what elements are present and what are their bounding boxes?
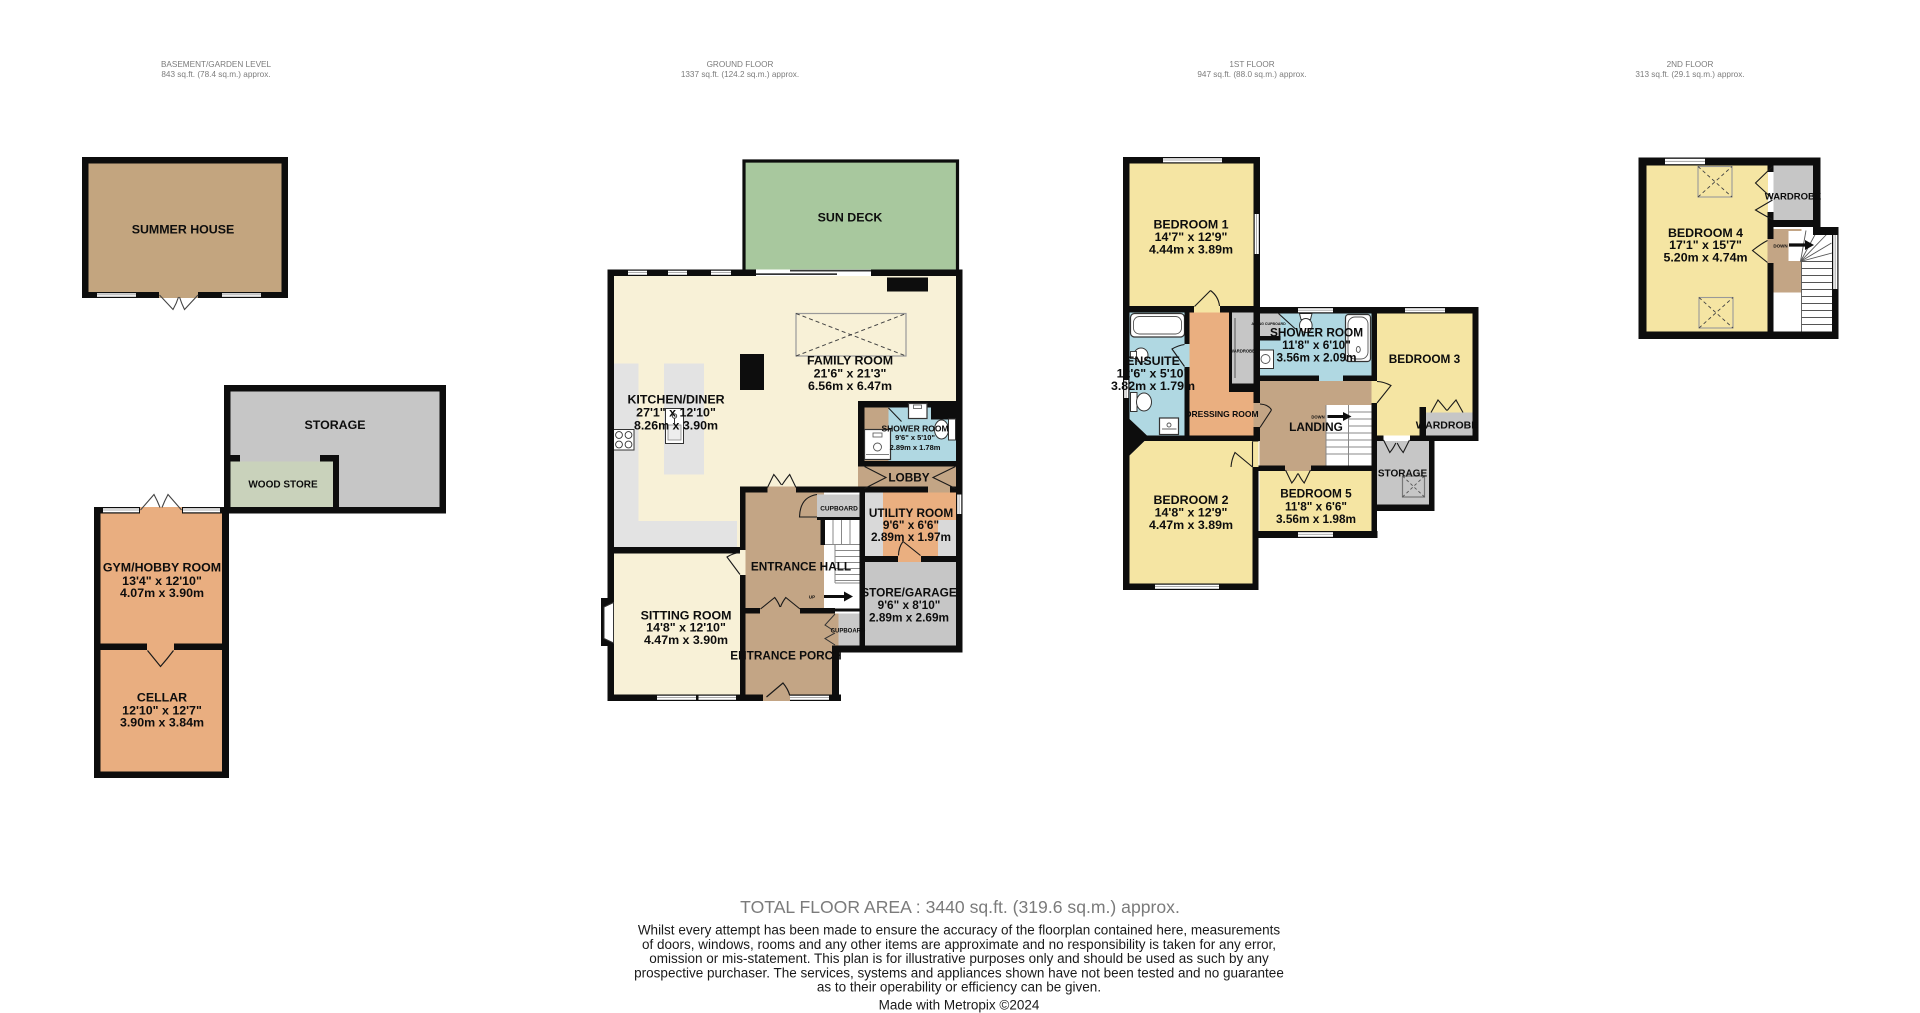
svg-text:SUMMER HOUSE: SUMMER HOUSE [132,223,235,237]
svg-text:27'1" x 12'10": 27'1" x 12'10" [636,406,716,420]
svg-text:4.47m x 3.89m: 4.47m x 3.89m [1149,518,1233,532]
svg-text:5.20m x 4.74m: 5.20m x 4.74m [1663,251,1747,265]
svg-text:3.82m x 1.79m: 3.82m x 1.79m [1111,379,1195,393]
svg-text:TOTAL FLOOR AREA : 3440 sq.ft.: TOTAL FLOOR AREA : 3440 sq.ft. (319.6 sq… [740,897,1180,917]
svg-text:LOBBY: LOBBY [888,471,929,485]
svg-text:9'6" x 5'10": 9'6" x 5'10" [895,433,935,442]
svg-text:CUPBOARD: CUPBOARD [820,506,858,513]
svg-text:2ND FLOOR: 2ND FLOOR [1667,60,1714,69]
svg-text:LANDING: LANDING [1289,420,1343,434]
svg-text:BEDROOM 3: BEDROOM 3 [1389,352,1461,366]
svg-text:DOWN: DOWN [1773,244,1787,249]
svg-text:Whilst every attempt has been: Whilst every attempt has been made to en… [638,923,1281,938]
svg-text:WARDROBE: WARDROBE [1230,349,1255,354]
svg-text:WARDROBE: WARDROBE [1416,420,1478,432]
svg-text:prospective purchaser. The ser: prospective purchaser. The services, sys… [634,965,1284,980]
svg-text:4.07m x 3.90m: 4.07m x 3.90m [120,586,204,600]
svg-text:6.56m x 6.47m: 6.56m x 6.47m [808,379,892,393]
svg-text:ENTRANCE PORCH: ENTRANCE PORCH [730,649,841,663]
svg-text:CELLAR: CELLAR [137,691,187,705]
svg-text:CUPBOARD: CUPBOARD [831,629,866,635]
svg-text:3.56m x 1.98m: 3.56m x 1.98m [1276,512,1356,526]
svg-text:947 sq.ft. (88.0 sq.m.) approx: 947 sq.ft. (88.0 sq.m.) approx. [1197,70,1306,79]
svg-text:SUN DECK: SUN DECK [818,211,883,225]
svg-text:of doors, windows, rooms and a: of doors, windows, rooms and any other i… [642,937,1276,952]
svg-text:omission or mis-statement. Thi: omission or mis-statement. This plan is … [649,951,1269,966]
svg-text:DOWN: DOWN [1311,415,1324,420]
svg-text:ENTRANCE HALL: ENTRANCE HALL [751,560,851,574]
svg-text:4.47m x 3.90m: 4.47m x 3.90m [644,633,728,647]
svg-text:1ST FLOOR: 1ST FLOOR [1229,60,1274,69]
svg-text:1337 sq.ft. (124.2 sq.m.) appr: 1337 sq.ft. (124.2 sq.m.) approx. [681,70,799,79]
svg-text:WOOD STORE: WOOD STORE [248,480,318,491]
svg-text:GYM/HOBBY ROOM: GYM/HOBBY ROOM [103,561,221,575]
svg-text:FAMILY ROOM: FAMILY ROOM [807,354,893,368]
svg-text:2.89m x 1.78m: 2.89m x 1.78m [890,443,941,452]
svg-text:SHOWER ROOM: SHOWER ROOM [881,424,948,434]
svg-text:4.44m x 3.89m: 4.44m x 3.89m [1149,243,1233,257]
svg-text:313 sq.ft. (29.1 sq.m.) approx: 313 sq.ft. (29.1 sq.m.) approx. [1635,70,1744,79]
svg-text:as to their operability or eff: as to their operability or efficiency ca… [817,980,1101,995]
svg-text:Made with Metropix ©2024: Made with Metropix ©2024 [879,998,1040,1013]
svg-text:8.26m x 3.90m: 8.26m x 3.90m [634,419,718,433]
svg-text:843 sq.ft. (78.4 sq.m.) approx: 843 sq.ft. (78.4 sq.m.) approx. [161,70,270,79]
svg-text:BASEMENT/GARDEN LEVEL: BASEMENT/GARDEN LEVEL [161,60,272,69]
svg-text:GROUND FLOOR: GROUND FLOOR [707,60,774,69]
svg-text:BEDROOM 5: BEDROOM 5 [1280,487,1352,501]
svg-text:2.89m x 1.97m: 2.89m x 1.97m [871,530,951,544]
svg-text:3.56m x 2.09m: 3.56m x 2.09m [1276,351,1356,365]
svg-text:3.90m x 3.84m: 3.90m x 3.84m [120,716,204,730]
svg-text:STORAGE: STORAGE [304,418,365,432]
svg-text:STORAGE: STORAGE [1378,469,1428,480]
svg-text:WARDROBE: WARDROBE [1765,192,1821,203]
svg-text:UP: UP [809,595,815,600]
svg-text:2.89m x 2.69m: 2.89m x 2.69m [869,611,949,625]
svg-text:KITCHEN/DINER: KITCHEN/DINER [627,393,724,407]
svg-text:DRESSING ROOM: DRESSING ROOM [1185,409,1258,419]
